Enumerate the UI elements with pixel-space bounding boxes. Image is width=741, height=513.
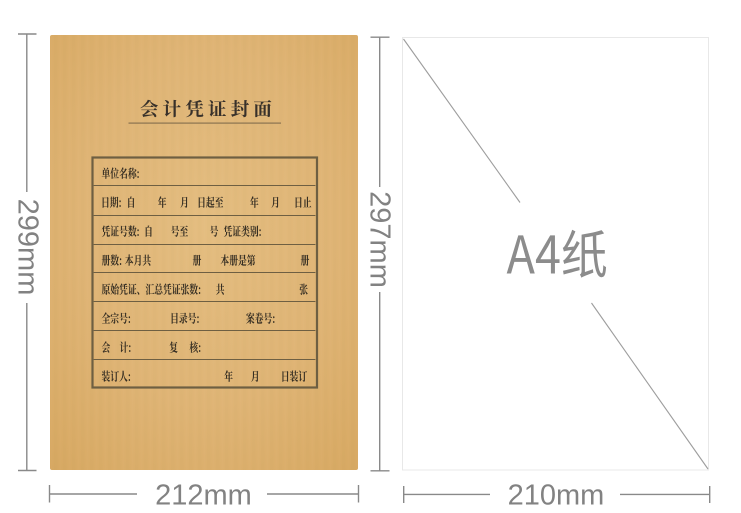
svg-text:299mm: 299mm xyxy=(12,199,44,296)
svg-text:297mm: 297mm xyxy=(364,191,396,288)
svg-text:212mm: 212mm xyxy=(155,480,252,512)
svg-text:210mm: 210mm xyxy=(508,480,605,512)
